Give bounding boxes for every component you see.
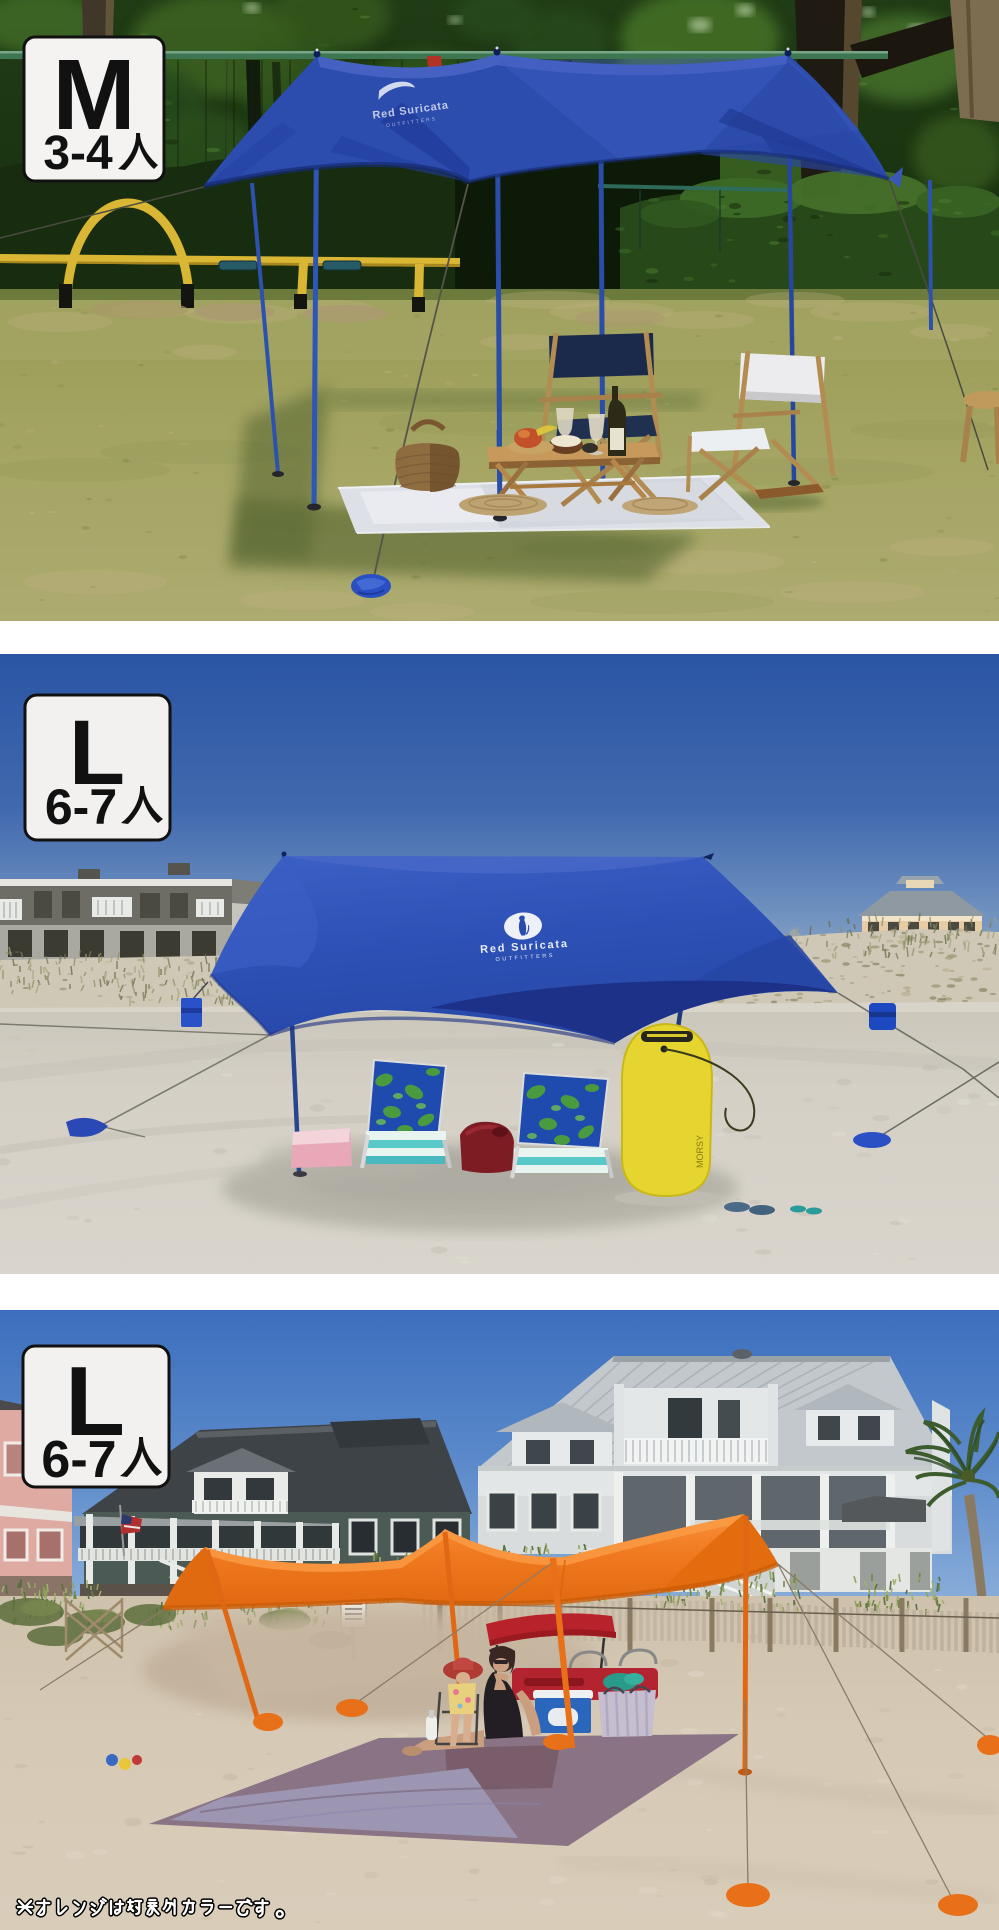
svg-text:6-7: 6-7 xyxy=(41,1431,116,1489)
svg-text:MORSY: MORSY xyxy=(695,1135,705,1168)
svg-text:3-4: 3-4 xyxy=(43,127,113,180)
svg-text:6-7: 6-7 xyxy=(45,779,117,835)
